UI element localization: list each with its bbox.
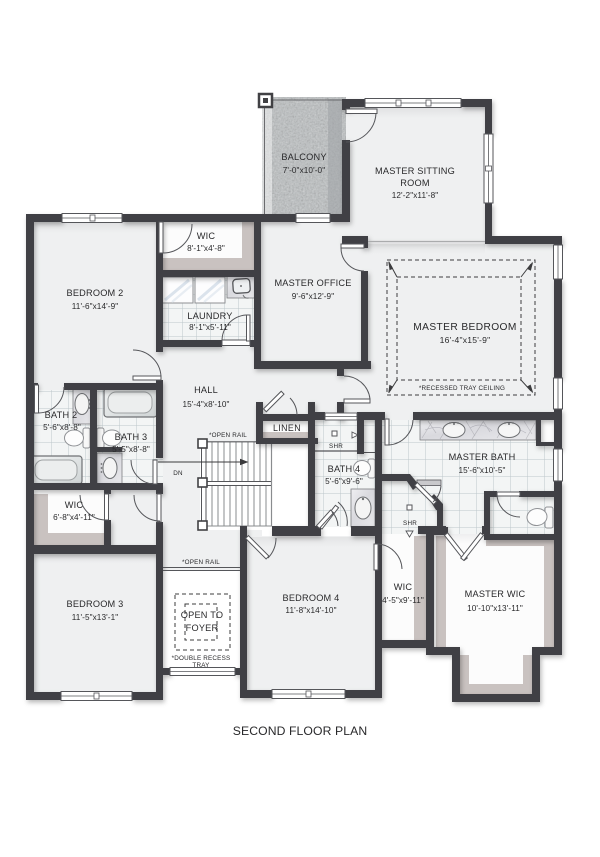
svg-text:MASTER BEDROOM: MASTER BEDROOM (413, 322, 517, 333)
svg-text:WIC: WIC (197, 231, 216, 241)
svg-text:*DOUBLE RECESS: *DOUBLE RECESS (172, 655, 231, 662)
svg-text:12'-2"x11'-8": 12'-2"x11'-8" (392, 191, 439, 200)
svg-text:SHR: SHR (403, 520, 417, 527)
svg-text:*OPEN RAIL: *OPEN RAIL (182, 559, 220, 566)
svg-text:BALCONY: BALCONY (281, 152, 326, 162)
svg-text:8'-1"x4'-8": 8'-1"x4'-8" (187, 244, 225, 253)
svg-text:BATH 3: BATH 3 (115, 432, 148, 442)
svg-text:OPEN TO: OPEN TO (181, 610, 223, 620)
svg-text:11'-8"x14'-10": 11'-8"x14'-10" (285, 606, 336, 615)
svg-text:8'-1"x5'-11": 8'-1"x5'-11" (189, 323, 231, 332)
svg-text:FOYER: FOYER (186, 623, 219, 633)
svg-text:MASTER SITTING: MASTER SITTING (375, 166, 455, 176)
svg-text:9'-6"x12'-9": 9'-6"x12'-9" (292, 292, 334, 301)
svg-text:15'-4"x8'-10": 15'-4"x8'-10" (182, 400, 229, 409)
svg-text:SHR: SHR (329, 443, 343, 450)
svg-text:WIC: WIC (394, 582, 413, 592)
svg-text:16'-4"x15'-9": 16'-4"x15'-9" (440, 335, 491, 345)
svg-text:5'-5"x8'-8": 5'-5"x8'-8" (112, 445, 150, 454)
svg-text:BEDROOM 2: BEDROOM 2 (67, 288, 124, 298)
svg-text:*RECESSED TRAY CEILING: *RECESSED TRAY CEILING (419, 385, 505, 392)
svg-text:MASTER OFFICE: MASTER OFFICE (274, 278, 351, 288)
svg-text:WIC: WIC (65, 500, 84, 510)
svg-text:4'-5"x9'-11": 4'-5"x9'-11" (382, 596, 424, 605)
svg-text:LINEN: LINEN (273, 423, 301, 433)
svg-text:7'-0"x10'-0": 7'-0"x10'-0" (283, 166, 325, 175)
svg-text:DN: DN (173, 470, 183, 477)
svg-text:LAUNDRY: LAUNDRY (187, 311, 232, 321)
svg-text:11'-6"x14'-9": 11'-6"x14'-9" (72, 302, 119, 311)
svg-text:TRAY: TRAY (192, 662, 210, 669)
svg-text:BEDROOM 4: BEDROOM 4 (283, 593, 340, 603)
svg-text:MASTER BATH: MASTER BATH (449, 452, 516, 462)
svg-text:5'-6"x9'-6": 5'-6"x9'-6" (325, 477, 363, 486)
svg-text:HALL: HALL (194, 385, 218, 395)
svg-text:BATH 2: BATH 2 (45, 410, 78, 420)
svg-text:10'-10"x13'-11": 10'-10"x13'-11" (467, 604, 523, 613)
svg-text:BATH 4: BATH 4 (328, 464, 361, 474)
svg-text:BEDROOM 3: BEDROOM 3 (67, 599, 124, 609)
svg-text:ROOM: ROOM (400, 178, 429, 188)
svg-text:SECOND FLOOR PLAN: SECOND FLOOR PLAN (233, 724, 367, 738)
svg-text:15'-6"x10'-5": 15'-6"x10'-5" (458, 466, 505, 475)
svg-text:11'-5"x13'-1": 11'-5"x13'-1" (72, 613, 119, 622)
svg-text:*OPEN RAIL: *OPEN RAIL (209, 432, 247, 439)
svg-text:6'-8"x4'-11": 6'-8"x4'-11" (53, 513, 95, 522)
svg-text:5'-6"x8'-8": 5'-6"x8'-8" (43, 423, 81, 432)
svg-text:MASTER WIC: MASTER WIC (465, 589, 526, 599)
